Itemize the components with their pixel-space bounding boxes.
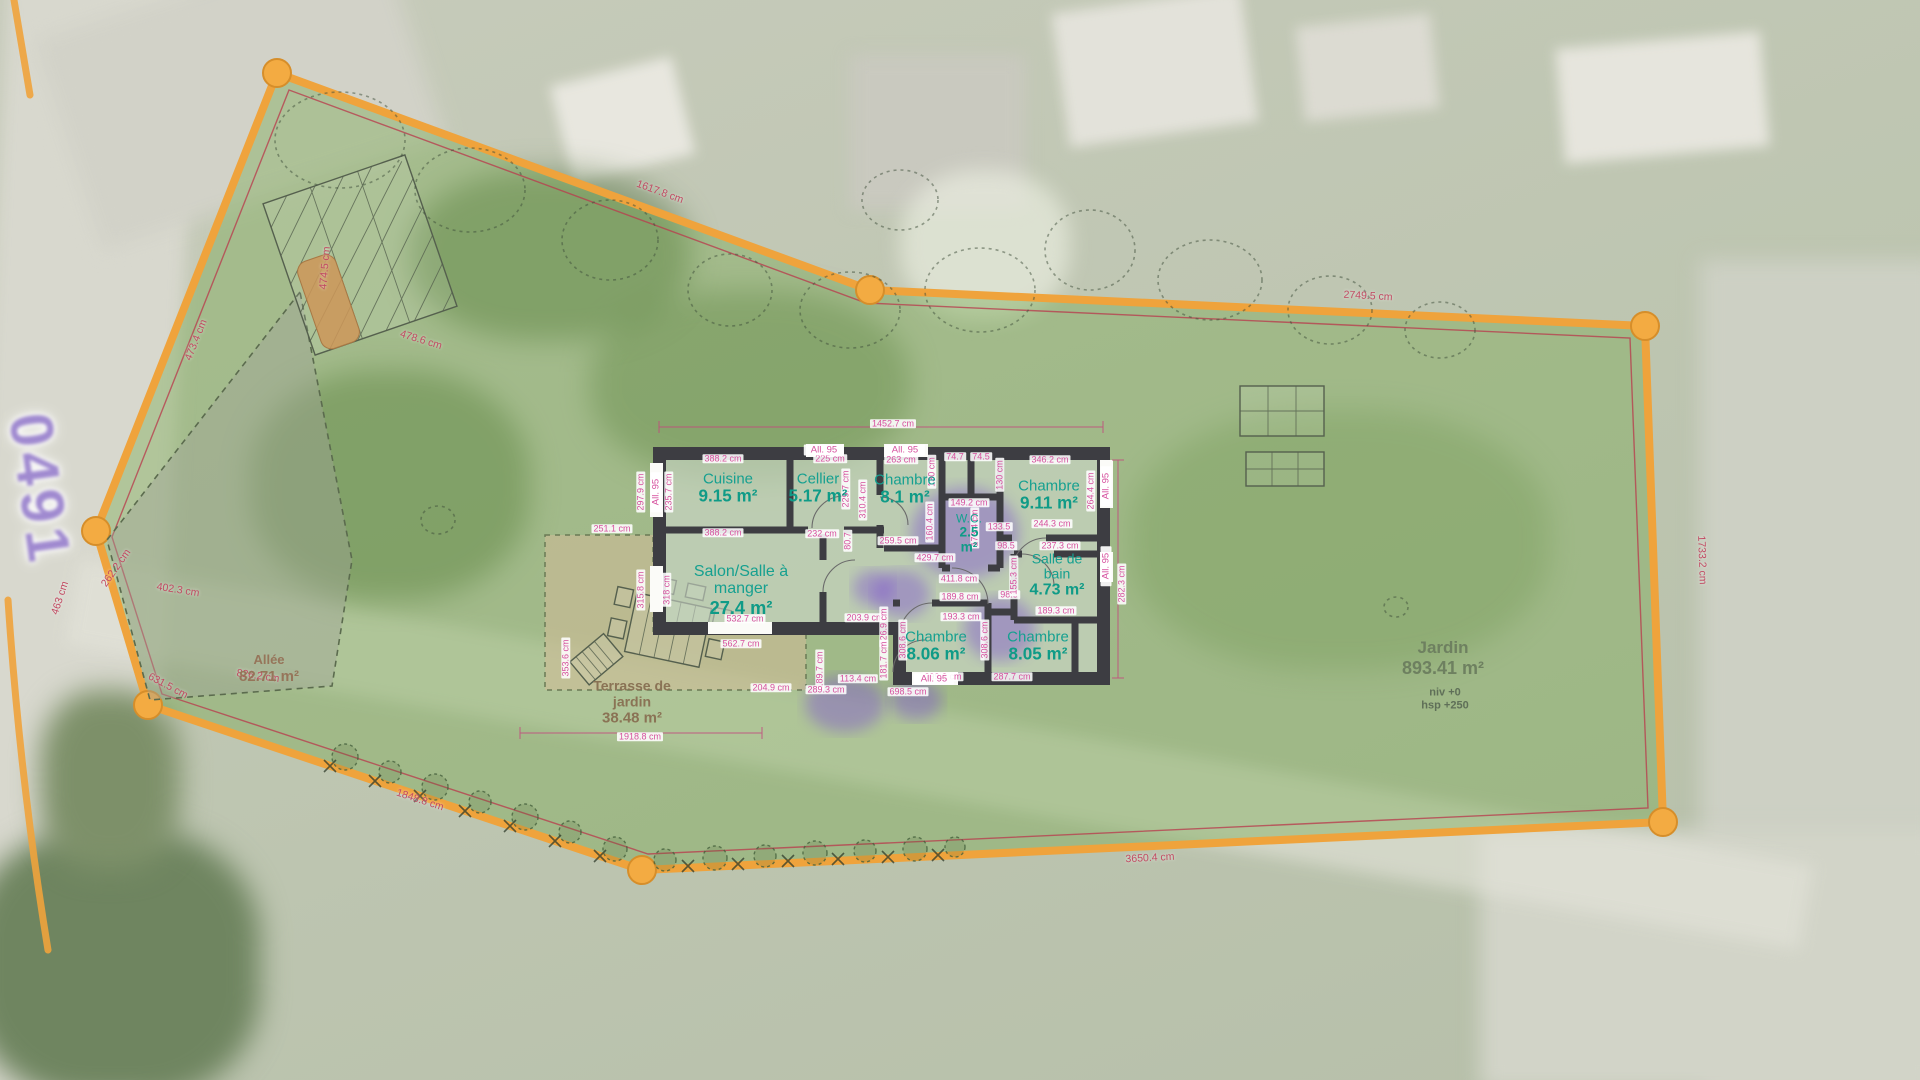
terrace-name-line1: Terrasse de (593, 677, 671, 693)
garden-name: Jardin (1402, 638, 1484, 658)
level-value: niv +0 (1421, 686, 1468, 699)
terrace-area-label: Terrasse de jardin 38.48 m² (593, 677, 671, 726)
window (1100, 552, 1113, 582)
boundary-vertex (263, 59, 291, 87)
highlight-blob (805, 676, 885, 732)
window (806, 444, 844, 457)
window (884, 444, 928, 457)
window (1100, 460, 1113, 508)
shed-outline (1240, 386, 1324, 486)
highlight-blob (890, 680, 942, 720)
allee-area-label: Allée 82.71 m² (239, 653, 299, 685)
window (912, 672, 958, 685)
allee-area-value: 82.71 m² (239, 668, 299, 685)
window (650, 566, 663, 612)
highlight-blob (964, 597, 1036, 661)
garden-area-value: 893.41 m² (1402, 657, 1484, 678)
plan-overlay (0, 0, 1920, 1080)
boundary-vertex (1649, 808, 1677, 836)
terrace-name-line2: jardin (593, 693, 671, 709)
garden-area-label: Jardin 893.41 m² (1402, 638, 1484, 678)
window (708, 622, 772, 634)
allee-name: Allée (239, 653, 299, 668)
height-value: hsp +250 (1421, 699, 1468, 712)
highlight-blob (853, 570, 893, 606)
site-plan-canvas: 1452.7 cm388.2 cm225 cm263 cm74.774.5346… (0, 0, 1920, 1080)
window (650, 463, 663, 517)
level-label: niv +0 hsp +250 (1421, 686, 1468, 711)
boundary-vertex (1631, 312, 1659, 340)
terrace-area-value: 38.48 m² (593, 709, 671, 726)
boundary-vertex (82, 517, 110, 545)
boundary-vertex (628, 856, 656, 884)
